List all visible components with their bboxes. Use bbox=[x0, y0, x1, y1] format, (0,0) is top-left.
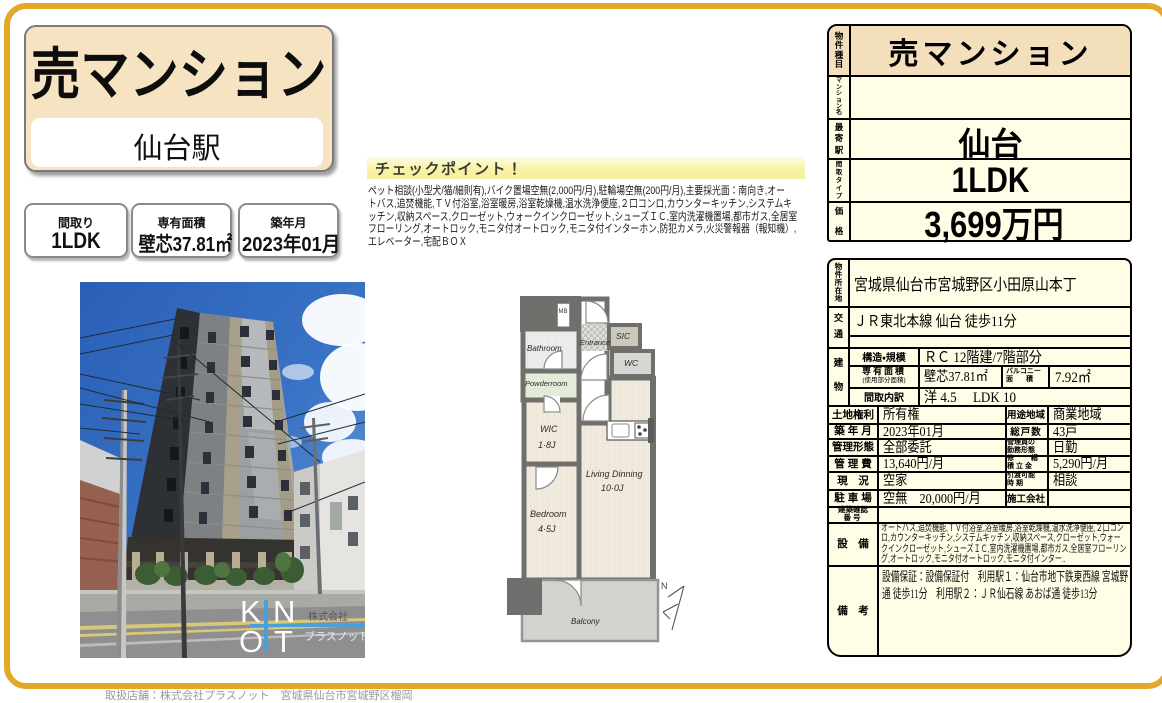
svg-text:WC: WC bbox=[624, 358, 639, 368]
svg-text:Entrance: Entrance bbox=[580, 338, 610, 347]
svg-text:Bathroom: Bathroom bbox=[527, 344, 562, 353]
svg-text:1·8J: 1·8J bbox=[538, 440, 556, 450]
svg-text:10·0J: 10·0J bbox=[601, 483, 624, 493]
svg-text:Bedroom: Bedroom bbox=[530, 509, 567, 519]
svg-text:T: T bbox=[274, 624, 293, 658]
svg-text:WIC: WIC bbox=[540, 424, 558, 434]
svg-text:N: N bbox=[661, 581, 668, 591]
svg-text:O: O bbox=[239, 624, 263, 658]
svg-text:株式会社: 株式会社 bbox=[308, 610, 348, 623]
svg-text:プラスノット: プラスノット bbox=[304, 630, 365, 643]
svg-text:Living Dinning: Living Dinning bbox=[586, 469, 643, 479]
svg-text:4·5J: 4·5J bbox=[538, 524, 556, 534]
svg-text:SIC: SIC bbox=[616, 331, 631, 341]
svg-text:Balcony: Balcony bbox=[571, 617, 600, 626]
svg-text:Powderroom: Powderroom bbox=[525, 379, 568, 388]
svg-text:MB: MB bbox=[559, 309, 568, 315]
